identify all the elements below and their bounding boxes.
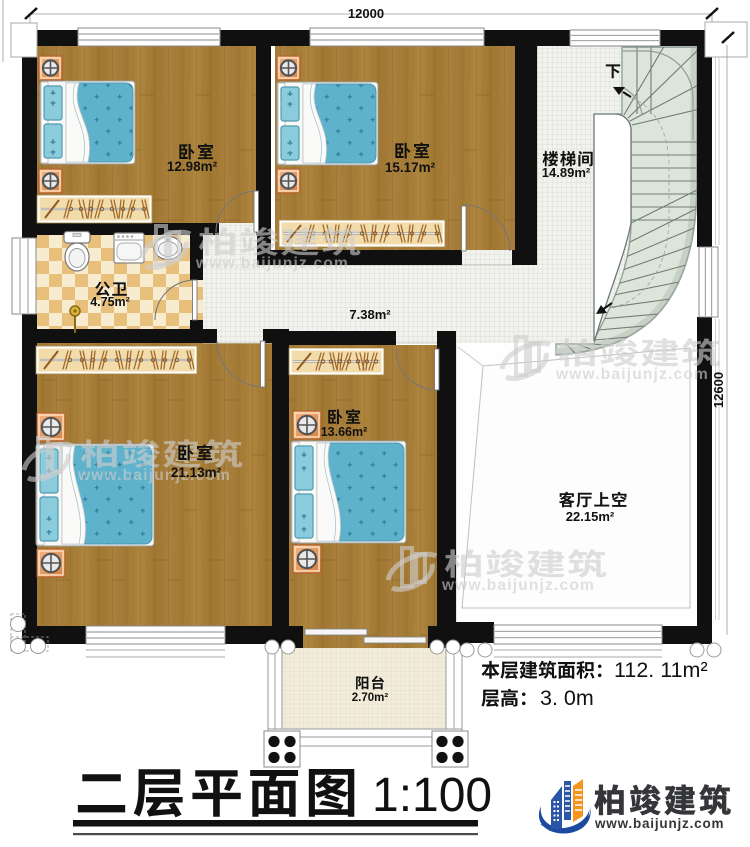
svg-text:7.38m²: 7.38m² (349, 307, 391, 322)
svg-text:www.baijunjz.com: www.baijunjz.com (441, 577, 595, 594)
svg-text:12600: 12600 (711, 372, 726, 408)
svg-text:1:100: 1:100 (372, 769, 492, 822)
svg-text:www.baijunjz.com: www.baijunjz.com (195, 255, 349, 272)
svg-text:15.17m²: 15.17m² (385, 160, 436, 175)
svg-text:12.98m²: 12.98m² (167, 159, 218, 174)
svg-text:14.89m²: 14.89m² (542, 165, 591, 180)
svg-text:13.66m²: 13.66m² (321, 425, 368, 439)
svg-text:112. 11m²: 112. 11m² (614, 658, 708, 682)
svg-text:www.baijunjz.com: www.baijunjz.com (594, 816, 724, 831)
svg-text:3. 0m: 3. 0m (540, 686, 594, 710)
svg-text:4.75m²: 4.75m² (90, 295, 130, 309)
svg-text:12000: 12000 (348, 6, 384, 21)
svg-text:21.13m²: 21.13m² (171, 465, 222, 480)
svg-text:2.70m²: 2.70m² (352, 692, 389, 704)
svg-text:www.baijunjz.com: www.baijunjz.com (555, 366, 709, 383)
svg-text:22.15m²: 22.15m² (566, 509, 615, 524)
